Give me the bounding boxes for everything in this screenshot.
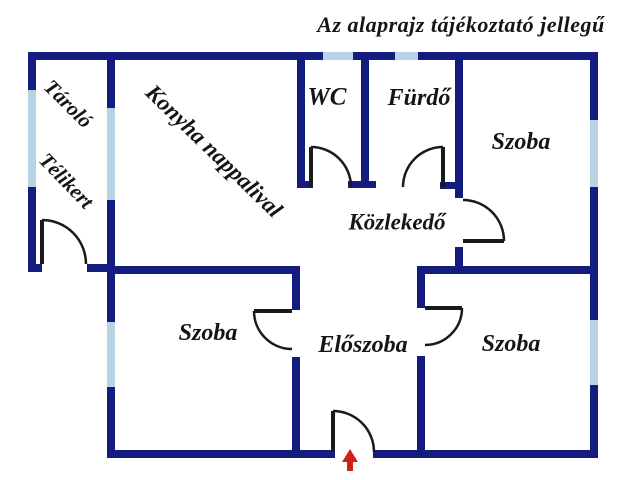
right-outer-wall — [590, 52, 598, 458]
plan-title: Az alaprajz tájékoztató jellegű — [317, 14, 604, 36]
room-label-furdo: Fürdő — [388, 86, 451, 110]
konyha-bottom-wall — [107, 266, 300, 274]
floorplan-drawing — [0, 0, 640, 480]
east-horizontal-wall — [417, 266, 598, 274]
room-label-kozlekedo: Közlekedő — [348, 211, 445, 234]
room-label-wc: WC — [308, 85, 347, 110]
room-label-szoba-bottom-right: Szoba — [482, 332, 541, 356]
entrance-arrow-icon — [342, 449, 358, 471]
furdo-right-wall — [455, 52, 463, 198]
entrance-door-arc — [333, 411, 374, 452]
room-label-szoba-bottom-left: Szoba — [179, 321, 238, 345]
wc-door-arc — [311, 147, 351, 187]
eloszoba-left-wall-lower — [292, 357, 300, 458]
eloszoba-right-wall-upper — [417, 266, 425, 308]
furdo-door-arc — [403, 147, 443, 187]
window-left-inner — [107, 108, 115, 200]
szoba-br-door-arc — [425, 308, 462, 345]
telikert-door-arc — [42, 220, 86, 264]
szoba-bl-door-arc — [254, 311, 292, 349]
window-top-wc — [323, 52, 353, 60]
wc-left-wall — [297, 52, 305, 188]
room-label-szoba-top-right: Szoba — [492, 130, 551, 154]
wc-furdo-wall — [361, 52, 369, 188]
szoba-tr-door-stub — [455, 247, 463, 268]
bottom-wall-left — [107, 450, 335, 458]
telikert-bottom-wall-left — [28, 264, 42, 272]
window-szoba-bl — [107, 322, 115, 387]
eloszoba-right-wall-lower — [417, 356, 425, 458]
floorplan-page: Az alaprajz tájékoztató jellegű Tároló T… — [0, 0, 640, 480]
room-label-eloszoba: Előszoba — [318, 333, 407, 357]
entrance-arrow-head — [342, 449, 358, 462]
window-right-top — [590, 120, 598, 187]
szoba-tr-door-arc — [463, 200, 504, 241]
eloszoba-left-wall-upper — [292, 266, 300, 310]
window-right-bottom — [590, 320, 598, 385]
window-left-outer — [28, 90, 36, 187]
window-top-furdo — [395, 52, 418, 60]
bottom-wall-right — [373, 450, 598, 458]
entrance-arrow-shaft — [347, 461, 353, 471]
